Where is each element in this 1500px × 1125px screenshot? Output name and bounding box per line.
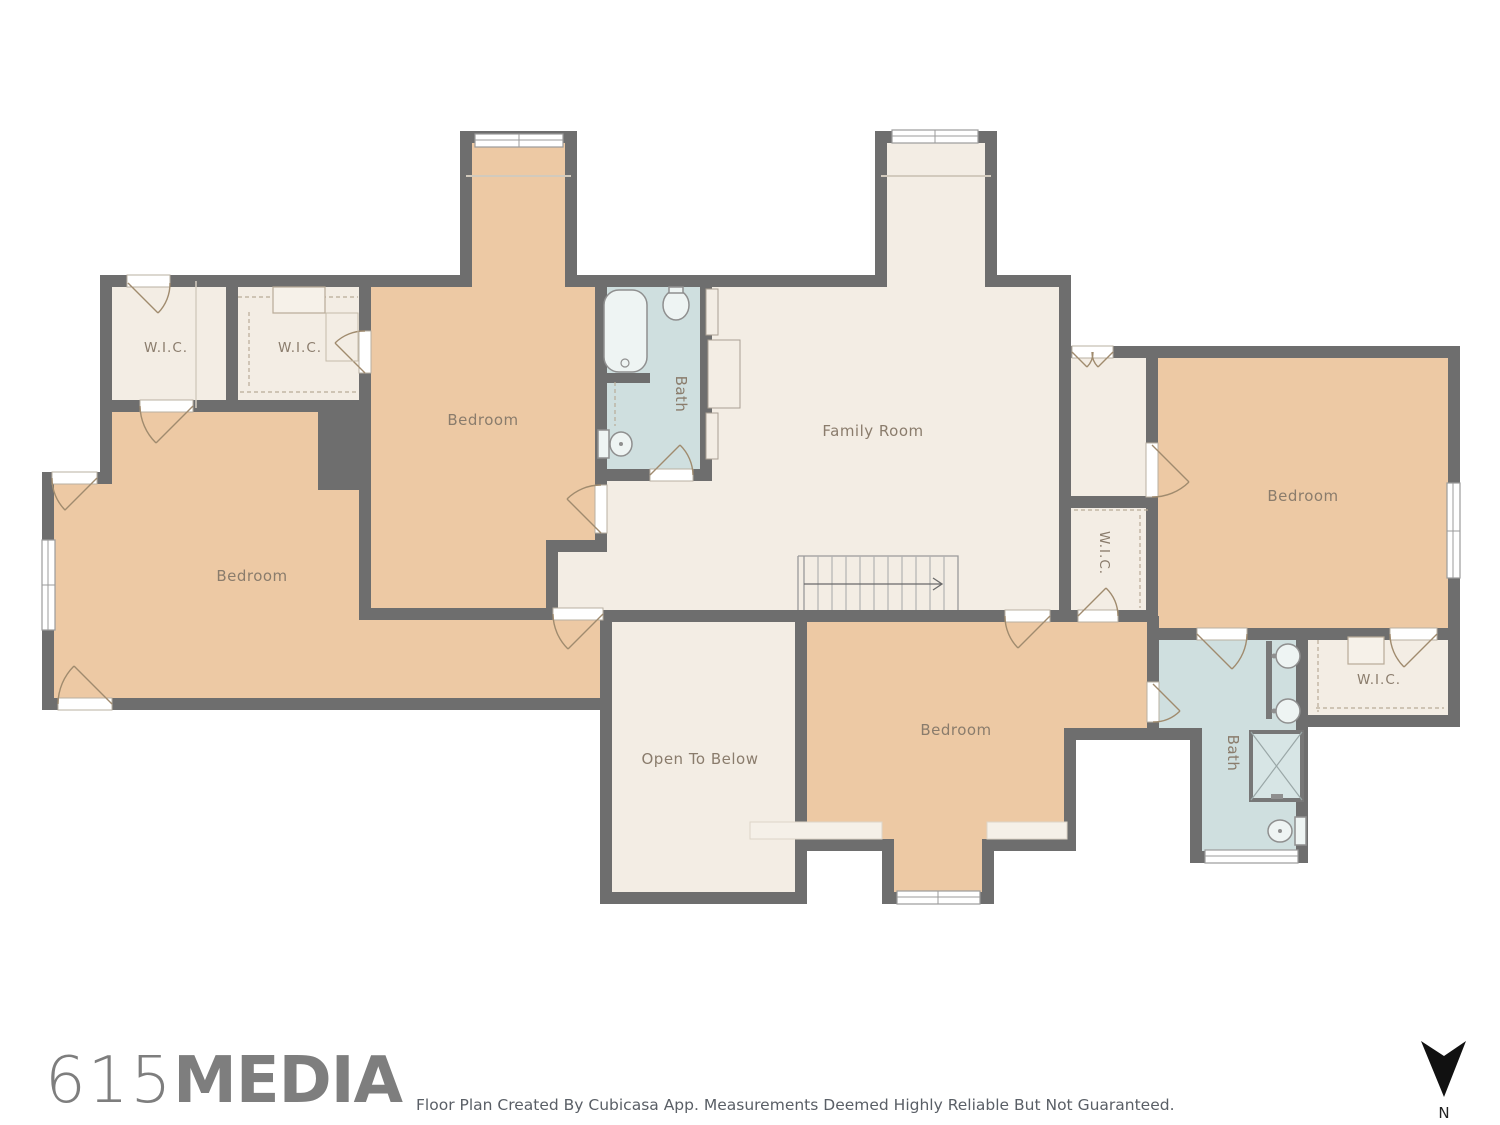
floor-plan-page: W.I.C. W.I.C. Bedroom Bath Family Room B… — [0, 0, 1500, 1125]
footer: 615MEDIA Floor Plan Created By Cubicasa … — [45, 1041, 1466, 1122]
logo-number: 615 — [45, 1044, 173, 1118]
window-bedroom-right — [1447, 483, 1460, 578]
window-bottom-bay — [897, 891, 980, 904]
label-bath-bottom: Bath — [1224, 735, 1242, 772]
builtin-band — [750, 822, 882, 839]
logo-word: MEDIA — [173, 1044, 403, 1118]
disclaimer-text: Floor Plan Created By Cubicasa App. Meas… — [416, 1096, 1175, 1114]
north-arrow-icon — [1421, 1041, 1466, 1097]
room-bedroom-top-bay — [462, 137, 575, 287]
label-bedroom-right: Bedroom — [1267, 487, 1338, 505]
window-bath-bottom — [1205, 850, 1298, 863]
label-bedroom-bottom: Bedroom — [920, 721, 991, 739]
room-hallway — [1065, 348, 1152, 616]
label-wic-top-center: W.I.C. — [278, 340, 322, 356]
company-logo: 615MEDIA — [45, 1044, 404, 1118]
north-label: N — [1438, 1104, 1449, 1122]
builtin-band — [987, 822, 1067, 839]
window-bedroom-left — [42, 540, 55, 630]
bathtub-icon — [604, 290, 647, 372]
floor-plan-drawing: W.I.C. W.I.C. Bedroom Bath Family Room B… — [0, 0, 1500, 1125]
window-top-bay-left — [475, 134, 563, 147]
room-bedroom-bottom — [801, 617, 1147, 898]
label-wic-top-left: W.I.C. — [144, 340, 188, 356]
toilet-bottom-icon — [1268, 817, 1306, 845]
shower-icon — [1251, 732, 1302, 800]
toilet-icon — [598, 430, 632, 458]
window-family-bay — [892, 130, 978, 143]
room-floors — [48, 137, 1454, 898]
label-open-to-below: Open To Below — [641, 750, 758, 768]
label-family-room: Family Room — [822, 422, 923, 440]
label-bath-top: Bath — [672, 376, 690, 413]
label-hall-wic: W.I.C. — [1096, 531, 1112, 575]
label-bedroom-left: Bedroom — [216, 567, 287, 585]
north-compass: N — [1421, 1041, 1466, 1122]
label-wic-bottom-right: W.I.C. — [1357, 672, 1401, 688]
label-bedroom-top: Bedroom — [447, 411, 518, 429]
